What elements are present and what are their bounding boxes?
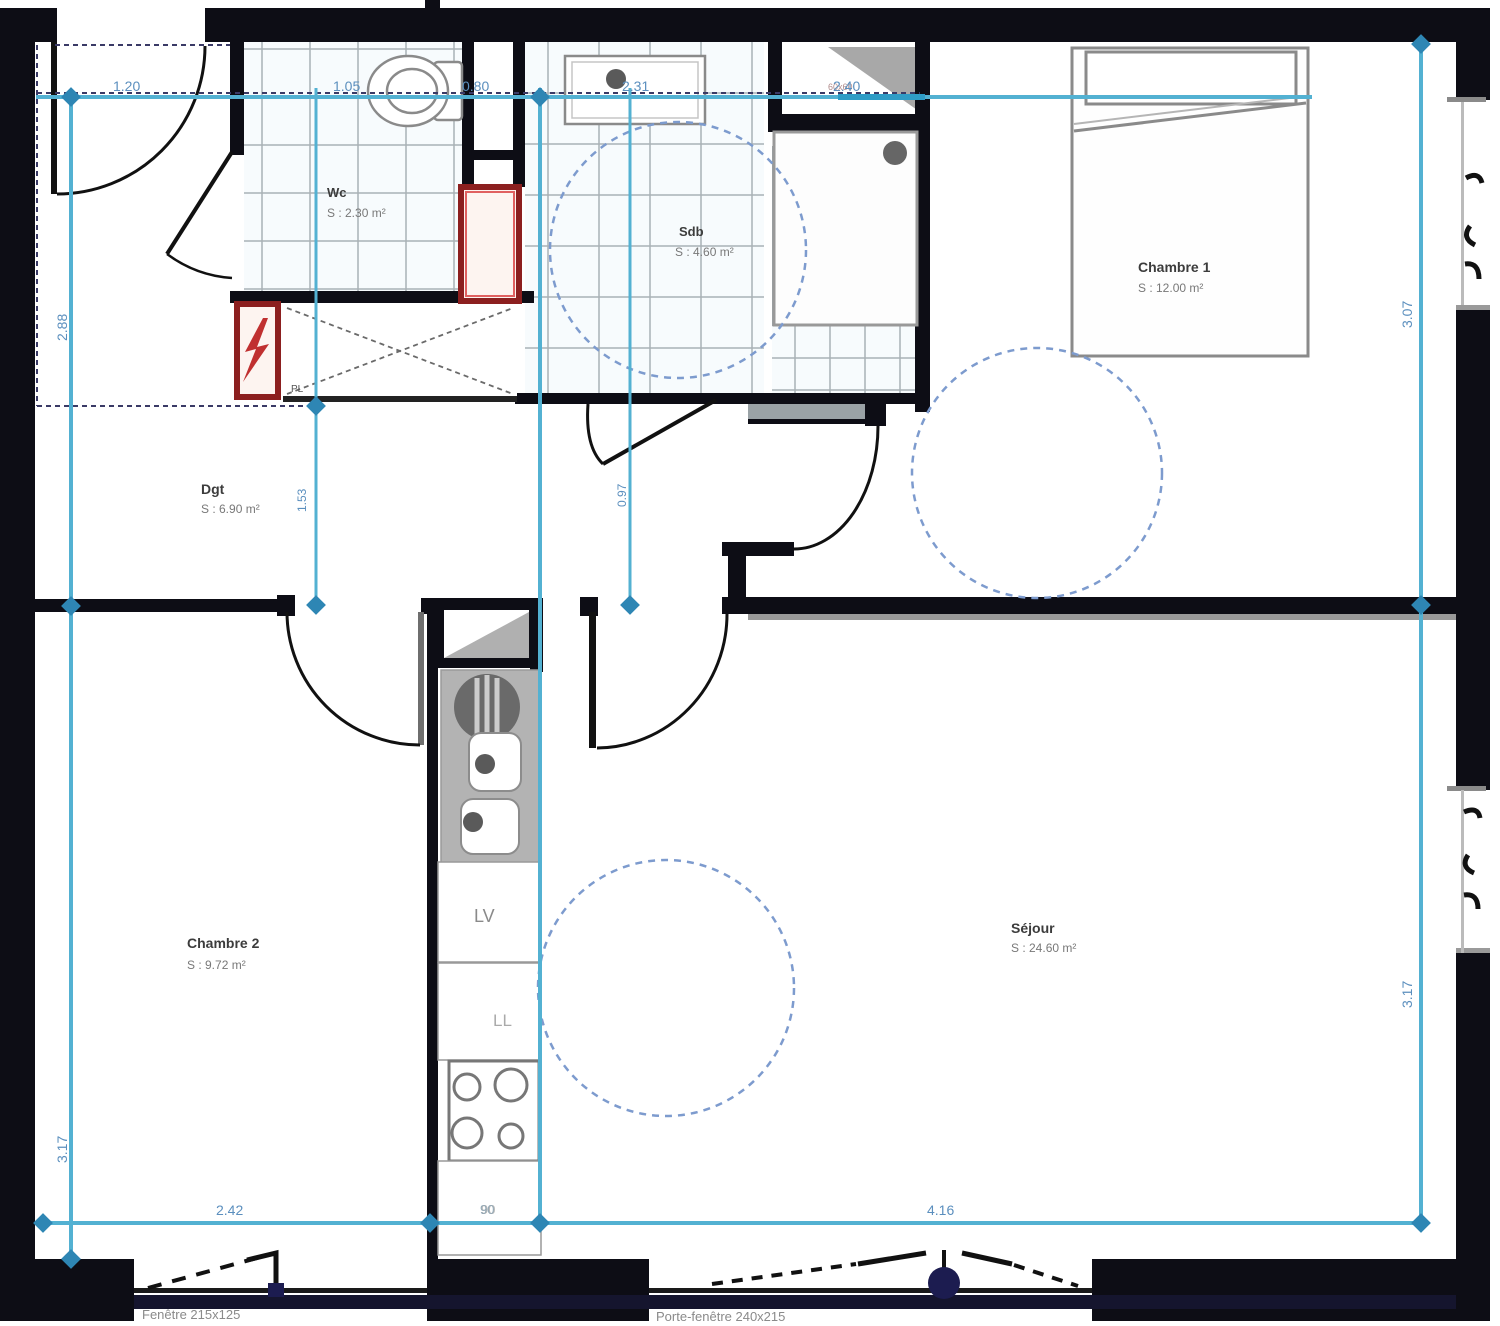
- svg-text:S : 24.60 m²: S : 24.60 m²: [1011, 941, 1076, 955]
- svg-text:Chambre 2: Chambre 2: [187, 935, 260, 951]
- svg-text:0.97: 0.97: [615, 483, 629, 507]
- svg-text:S : 6.90 m²: S : 6.90 m²: [201, 502, 260, 516]
- svg-text:PL: PL: [291, 384, 304, 395]
- svg-text:Séjour: Séjour: [1011, 920, 1055, 936]
- svg-text:2.40: 2.40: [833, 78, 860, 94]
- svg-text:1.53: 1.53: [295, 488, 309, 512]
- svg-text:1.05: 1.05: [333, 78, 360, 94]
- svg-text:Fenêtre 215x125: Fenêtre 215x125: [142, 1307, 240, 1321]
- svg-text:S : 9.72 m²: S : 9.72 m²: [187, 958, 246, 972]
- svg-text:3.17: 3.17: [1399, 981, 1415, 1008]
- svg-text:Sdb: Sdb: [679, 224, 704, 239]
- svg-text:S : 4.60 m²: S : 4.60 m²: [675, 245, 734, 259]
- svg-text:LV: LV: [474, 906, 495, 926]
- svg-text:Porte-fenêtre 240x215: Porte-fenêtre 240x215: [656, 1309, 785, 1321]
- svg-text:S : 12.00 m²: S : 12.00 m²: [1138, 281, 1203, 295]
- svg-text:2.88: 2.88: [54, 314, 70, 341]
- svg-text:2.31: 2.31: [622, 78, 649, 94]
- svg-text:3.07: 3.07: [1399, 301, 1415, 328]
- svg-text:0.80: 0.80: [462, 78, 489, 94]
- svg-text:90: 90: [480, 1202, 494, 1217]
- svg-text:Dgt: Dgt: [201, 481, 225, 497]
- svg-text:Chambre 1: Chambre 1: [1138, 259, 1211, 275]
- svg-text:Wc: Wc: [327, 185, 347, 200]
- svg-text:1.20: 1.20: [113, 78, 140, 94]
- svg-text:4.16: 4.16: [927, 1202, 954, 1218]
- svg-text:LL: LL: [493, 1011, 512, 1030]
- svg-text:S : 2.30 m²: S : 2.30 m²: [327, 206, 386, 220]
- svg-text:3.17: 3.17: [54, 1136, 70, 1163]
- svg-text:2.42: 2.42: [216, 1202, 243, 1218]
